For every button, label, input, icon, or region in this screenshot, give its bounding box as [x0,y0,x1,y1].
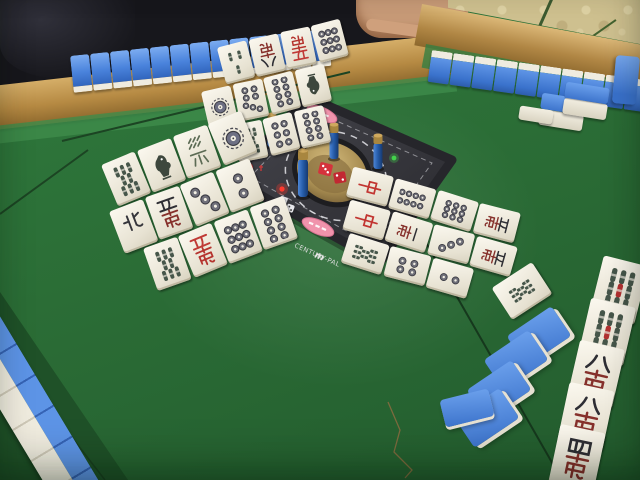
tile-face [477,242,510,271]
tile-face [299,68,328,102]
tile-face [396,184,429,213]
tile-face [284,31,312,65]
tile-back [90,52,113,91]
tile-face [253,38,282,72]
tile-face [178,130,215,173]
tile-man-8 [248,33,286,77]
tile-face [391,252,424,280]
tile-back [70,54,93,93]
tile-back [110,50,133,89]
tile-back [130,48,153,87]
tile-face [221,164,259,207]
tile-face [433,264,466,293]
tile-face [315,23,345,58]
tile-face [143,144,181,187]
tile-face [107,157,146,201]
tile-face [349,239,382,268]
tile-face [221,45,251,80]
tile-back [150,46,173,85]
tile-sou-1 [294,64,332,108]
tile-face [481,209,514,237]
tile-face [350,206,383,235]
tile-face [504,274,539,308]
tile-face [266,117,296,152]
tile-face [115,205,153,248]
tile-face [435,230,468,258]
tile-face [298,110,327,144]
tile-face [219,215,257,258]
tile-face [185,177,224,221]
tile-face [149,242,186,285]
tile-face [267,75,297,110]
tile-face [255,202,292,245]
stray-thread [388,402,412,478]
standing-tile-back [612,55,640,105]
tile-face [554,430,600,480]
tile-pin-8 [294,105,332,149]
tile-face [438,196,471,225]
tile-face [183,228,222,272]
mahjong-table-photo: CENTURY-PAL m [0,0,640,480]
tile-face [213,116,252,160]
tile-face [392,217,425,246]
tile-face [150,191,187,234]
tile-face [354,173,387,201]
tile-back [169,44,192,83]
tile-man-4 [548,424,605,480]
